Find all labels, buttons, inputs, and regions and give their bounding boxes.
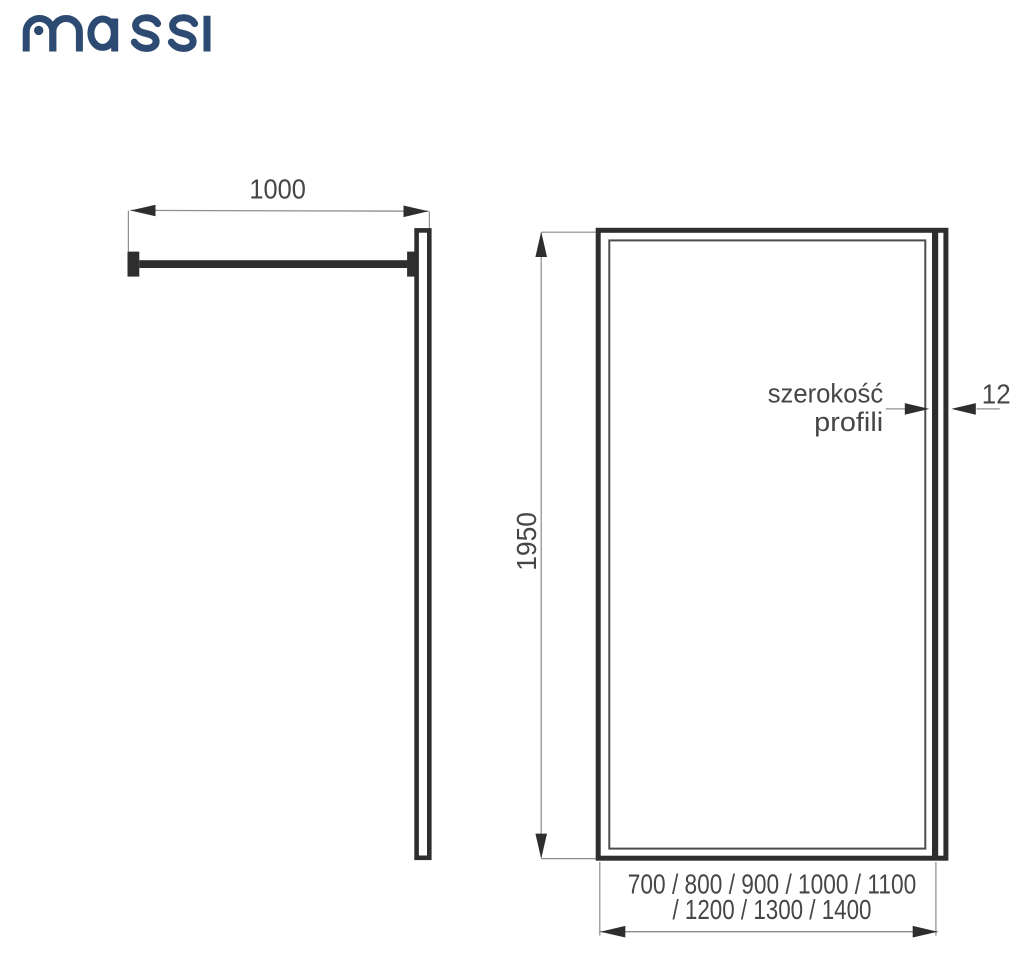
svg-text:szerokość: szerokość [768, 379, 884, 409]
svg-text:/ 1200 / 1300 / 1400: / 1200 / 1300 / 1400 [673, 894, 872, 925]
svg-text:12: 12 [982, 379, 1011, 410]
svg-text:1950: 1950 [511, 512, 542, 571]
svg-text:profili: profili [814, 407, 883, 437]
svg-text:1000: 1000 [249, 174, 306, 205]
